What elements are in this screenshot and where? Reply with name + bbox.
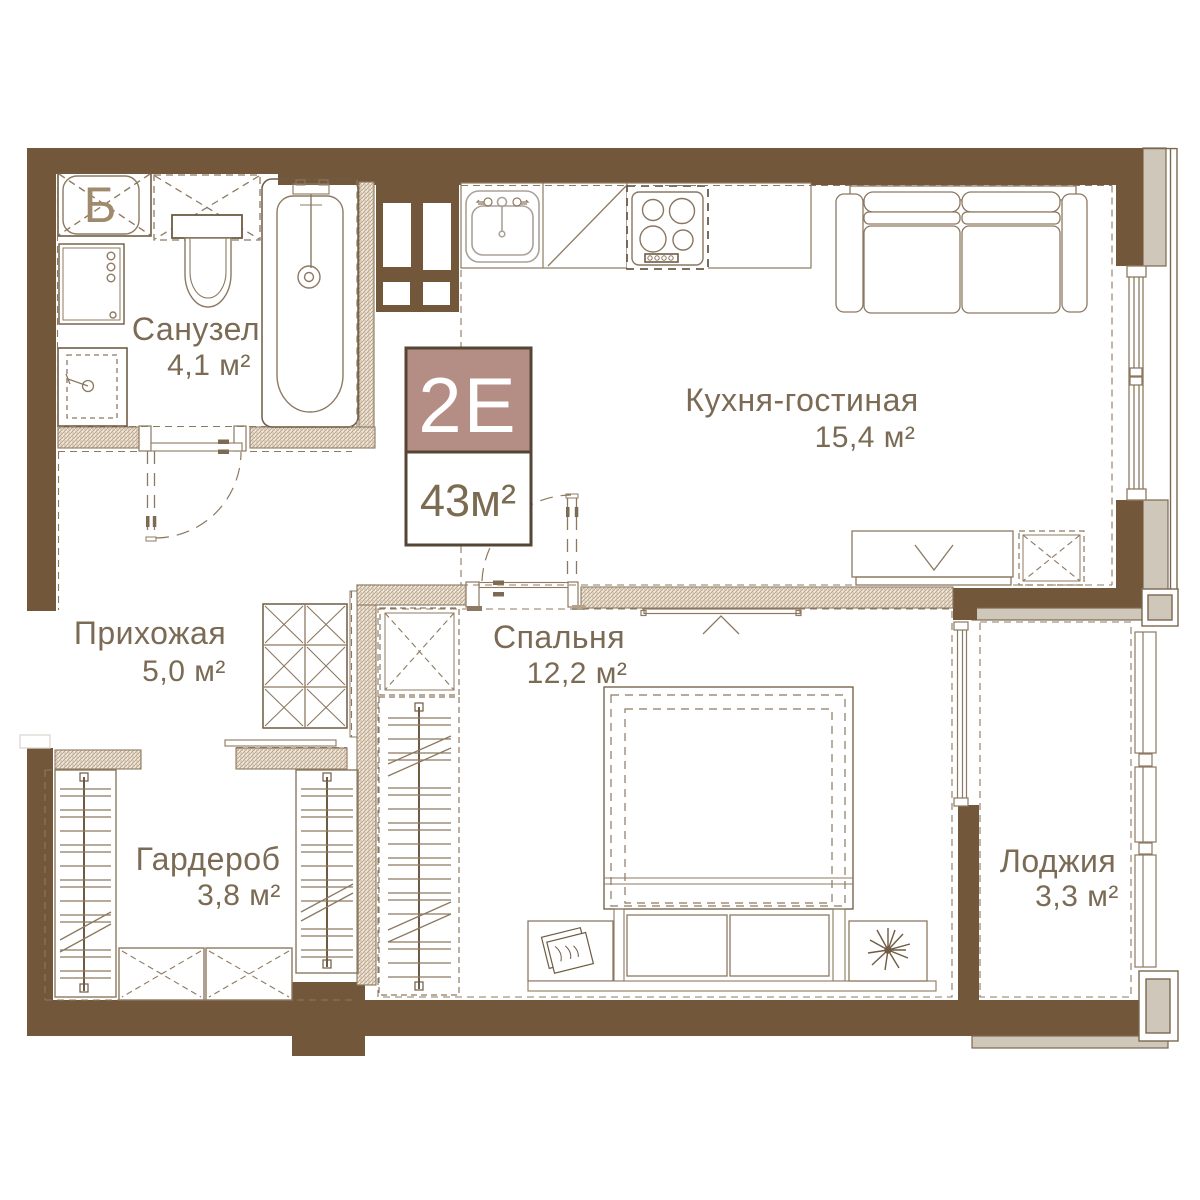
svg-text:Прихожая: Прихожая — [74, 615, 226, 651]
svg-text:5,0 м²: 5,0 м² — [142, 655, 226, 688]
svg-text:2Е: 2Е — [418, 361, 517, 449]
svg-text:Спальня: Спальня — [493, 619, 625, 655]
svg-text:12,2 м²: 12,2 м² — [527, 657, 628, 690]
svg-text:43м²: 43м² — [420, 475, 516, 526]
svg-text:3,3 м²: 3,3 м² — [1035, 880, 1119, 913]
svg-text:4,1 м²: 4,1 м² — [167, 349, 251, 382]
svg-text:Лоджия: Лоджия — [1000, 843, 1116, 879]
svg-text:3,8 м²: 3,8 м² — [197, 879, 281, 912]
svg-text:Санузел: Санузел — [132, 311, 260, 347]
svg-text:Гардероб: Гардероб — [136, 841, 281, 877]
svg-text:Кухня-гостиная: Кухня-гостиная — [685, 382, 918, 418]
svg-text:Б: Б — [84, 177, 117, 233]
svg-text:15,4 м²: 15,4 м² — [815, 421, 916, 454]
